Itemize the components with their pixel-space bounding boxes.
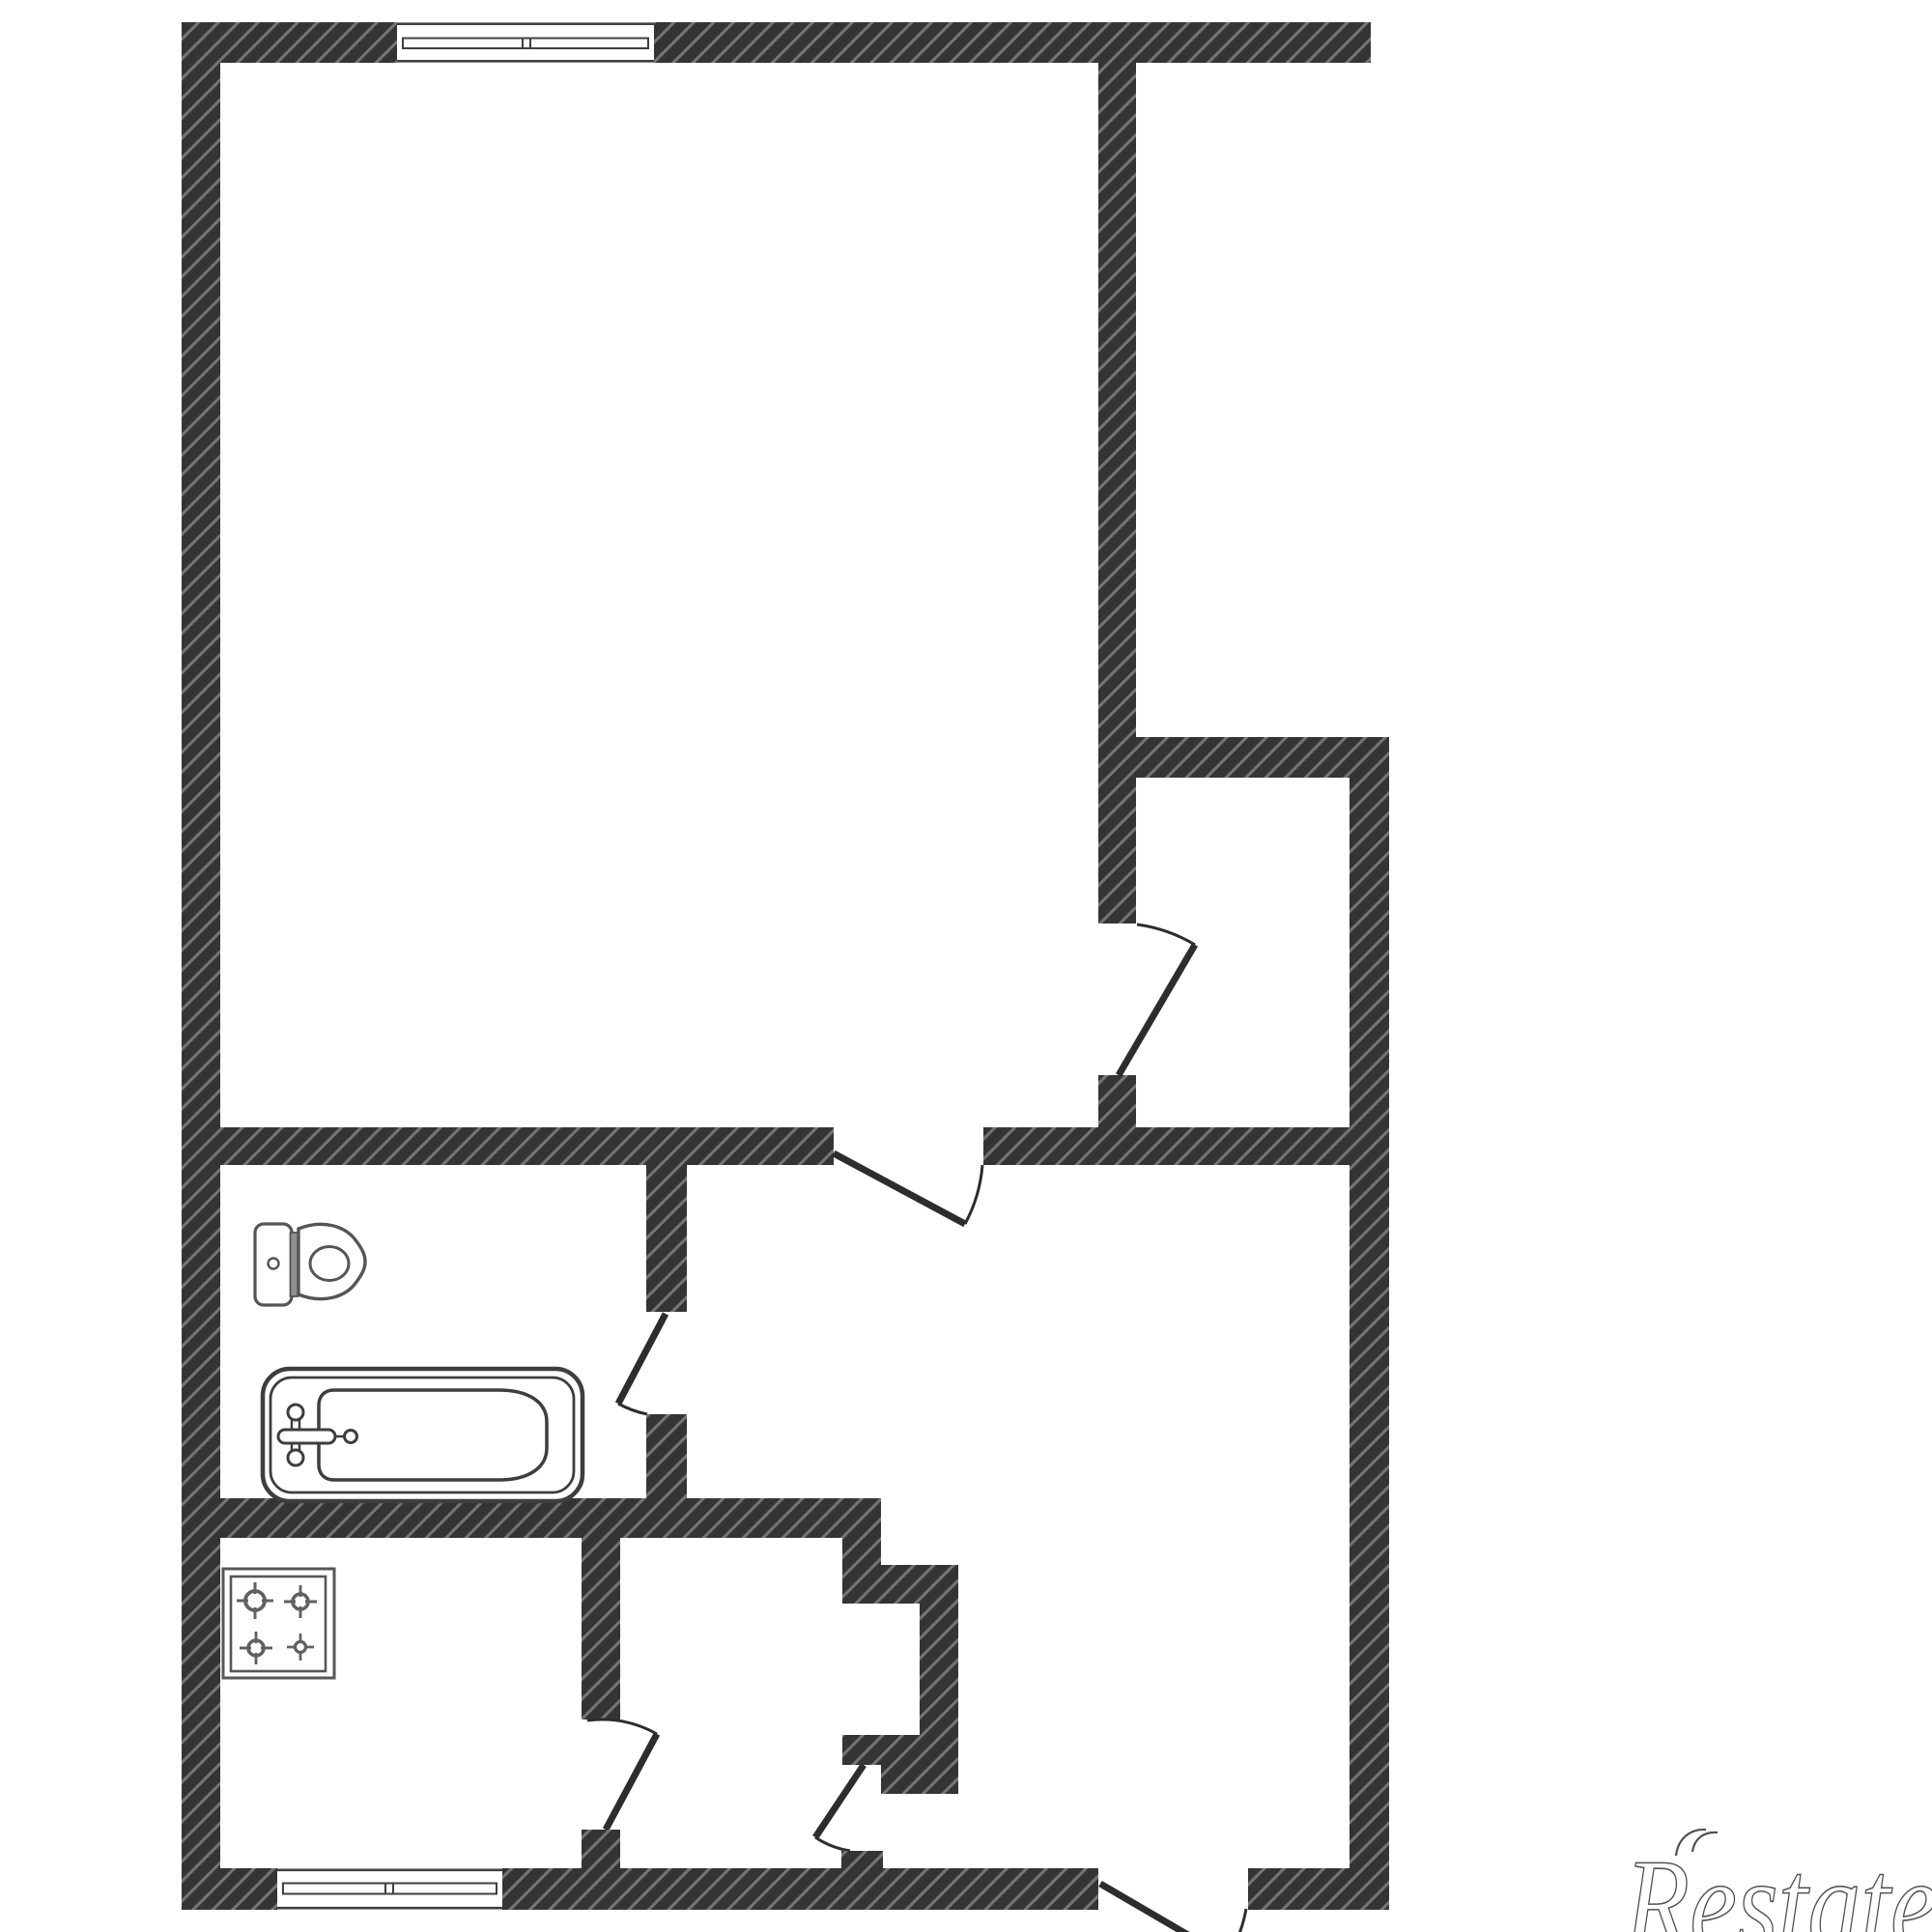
svg-text:Restate: Restate <box>1624 1834 1932 1932</box>
